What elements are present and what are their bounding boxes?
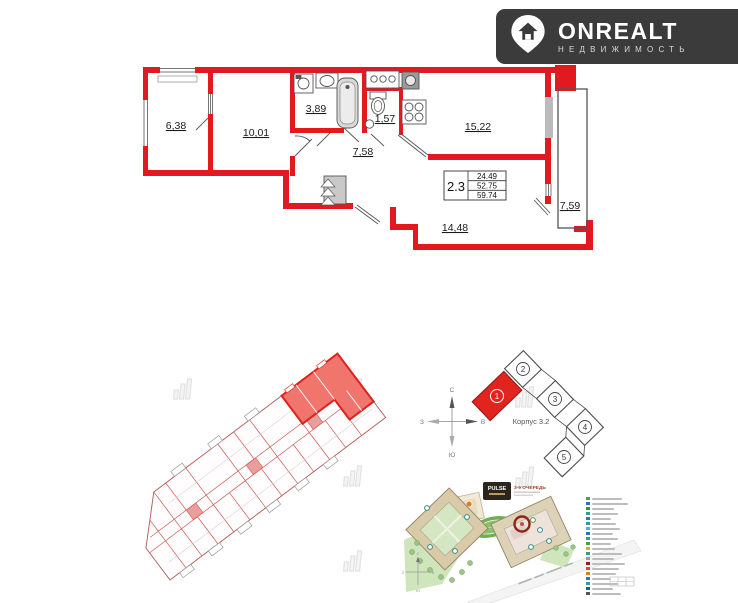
- total-area: 59.74: [477, 191, 498, 200]
- siteplan-legend: [586, 496, 642, 596]
- legend-label-text: [592, 593, 621, 595]
- area-loggia-left: 6,38: [166, 120, 187, 132]
- legend-label-text: [592, 498, 622, 500]
- legend-swatch: [586, 582, 590, 586]
- section-3-number: 3: [553, 395, 558, 404]
- apartment-floorplan: 6,38 10,01 3,89 1,57 15,22 7,58 14,48 7,…: [130, 55, 610, 265]
- onrealt-logo-badge: ONREALT НЕДВИЖИМОСТЬ: [496, 9, 738, 64]
- legend-swatch: [586, 572, 590, 576]
- legend-swatch: [586, 517, 590, 521]
- section-4-number: 4: [583, 423, 588, 432]
- listing-image: ONREALT НЕДВИЖИМОСТЬ: [0, 0, 738, 603]
- legend-label-text: [592, 543, 611, 545]
- legend-label-text: [592, 573, 616, 575]
- legend-label-text: [592, 513, 618, 515]
- legend-label-text: [592, 523, 616, 525]
- flat-type: 2.3: [447, 179, 465, 194]
- section-shapes: [472, 351, 603, 477]
- area-bathroom: 3,89: [306, 103, 327, 115]
- compass-w-small: З: [402, 570, 405, 575]
- compass-w: З: [420, 419, 424, 426]
- legend-swatch: [586, 592, 590, 596]
- legend-label-text: [592, 533, 613, 535]
- legend-swatch: [586, 497, 590, 501]
- compass-e: В: [481, 419, 485, 426]
- legend-swatch: [586, 507, 590, 511]
- legend-swatch: [586, 542, 590, 546]
- legend-label-text: [592, 548, 615, 550]
- legend-label-text: [592, 503, 628, 505]
- legend-label-text: [592, 508, 614, 510]
- compass-e-small: В: [432, 570, 435, 575]
- fine-print-line: [514, 495, 533, 496]
- area-bedroom-2: 10,01: [243, 127, 269, 139]
- legend-label-text: [592, 588, 613, 590]
- area-bedroom-1: 14,48: [442, 222, 468, 234]
- legend-swatch: [586, 547, 590, 551]
- legend-swatch: [586, 552, 590, 556]
- floor-plate-plan: [125, 345, 410, 595]
- legend-label-text: [592, 538, 618, 540]
- compass-n: С: [450, 387, 455, 394]
- legend-label-text: [592, 583, 618, 585]
- legend-swatch: [586, 557, 590, 561]
- legend-label-text: [592, 563, 625, 565]
- legend-swatch: [586, 567, 590, 571]
- phase-label: 3-9 ОЧЕРЕДЬ: [514, 485, 546, 491]
- developer-logo-text: PULSE: [488, 486, 507, 492]
- building-key-plan: 1 2 3 4 5 Корпус 3.2 С Ю З В: [415, 345, 615, 485]
- fine-print-line: [514, 492, 540, 493]
- keyplan-compass: С Ю З В: [420, 387, 485, 459]
- area-kitchen-living: 15,22: [465, 121, 491, 133]
- section-1-number: 1: [495, 392, 500, 401]
- legend-item: [586, 591, 642, 596]
- section-2-number: 2: [521, 365, 526, 374]
- legend-swatch: [586, 502, 590, 506]
- legend-label-text: [592, 553, 622, 555]
- legend-swatch: [586, 587, 590, 591]
- legend-swatch: [586, 577, 590, 581]
- area-loggia-right: 7,59: [560, 200, 581, 212]
- legend-label-text: [592, 578, 611, 580]
- area-wc: 1,57: [375, 113, 396, 125]
- legend-swatch: [586, 532, 590, 536]
- compass-n-small: С: [417, 551, 420, 556]
- logo-title: ONREALT: [558, 20, 690, 43]
- legend-swatch: [586, 562, 590, 566]
- living-area: 24.49: [477, 172, 498, 181]
- legend-swatch: [586, 512, 590, 516]
- legend-label-text: [592, 528, 620, 530]
- compass-s-small: Ю: [416, 588, 420, 593]
- developer-logo-block: PULSE 3-9 ОЧЕРЕДЬ: [483, 482, 546, 500]
- corpus-label: Корпус 3.2: [513, 417, 550, 426]
- section-5-number: 5: [562, 453, 567, 462]
- compass-s: Ю: [449, 452, 456, 459]
- legend-swatch: [586, 537, 590, 541]
- onrealt-pin-house-icon: [509, 13, 547, 60]
- legend-swatch: [586, 527, 590, 531]
- flat-area: 52.75: [477, 181, 498, 190]
- legend-label-text: [592, 558, 614, 560]
- legend-swatch: [586, 522, 590, 526]
- area-summary-table: 2.3 24.49 52.75 59.74: [444, 171, 506, 200]
- area-hallway: 7,58: [353, 146, 374, 158]
- logo-subtitle: НЕДВИЖИМОСТЬ: [558, 46, 690, 54]
- legend-label-text: [592, 568, 619, 570]
- legend-label-text: [592, 518, 611, 520]
